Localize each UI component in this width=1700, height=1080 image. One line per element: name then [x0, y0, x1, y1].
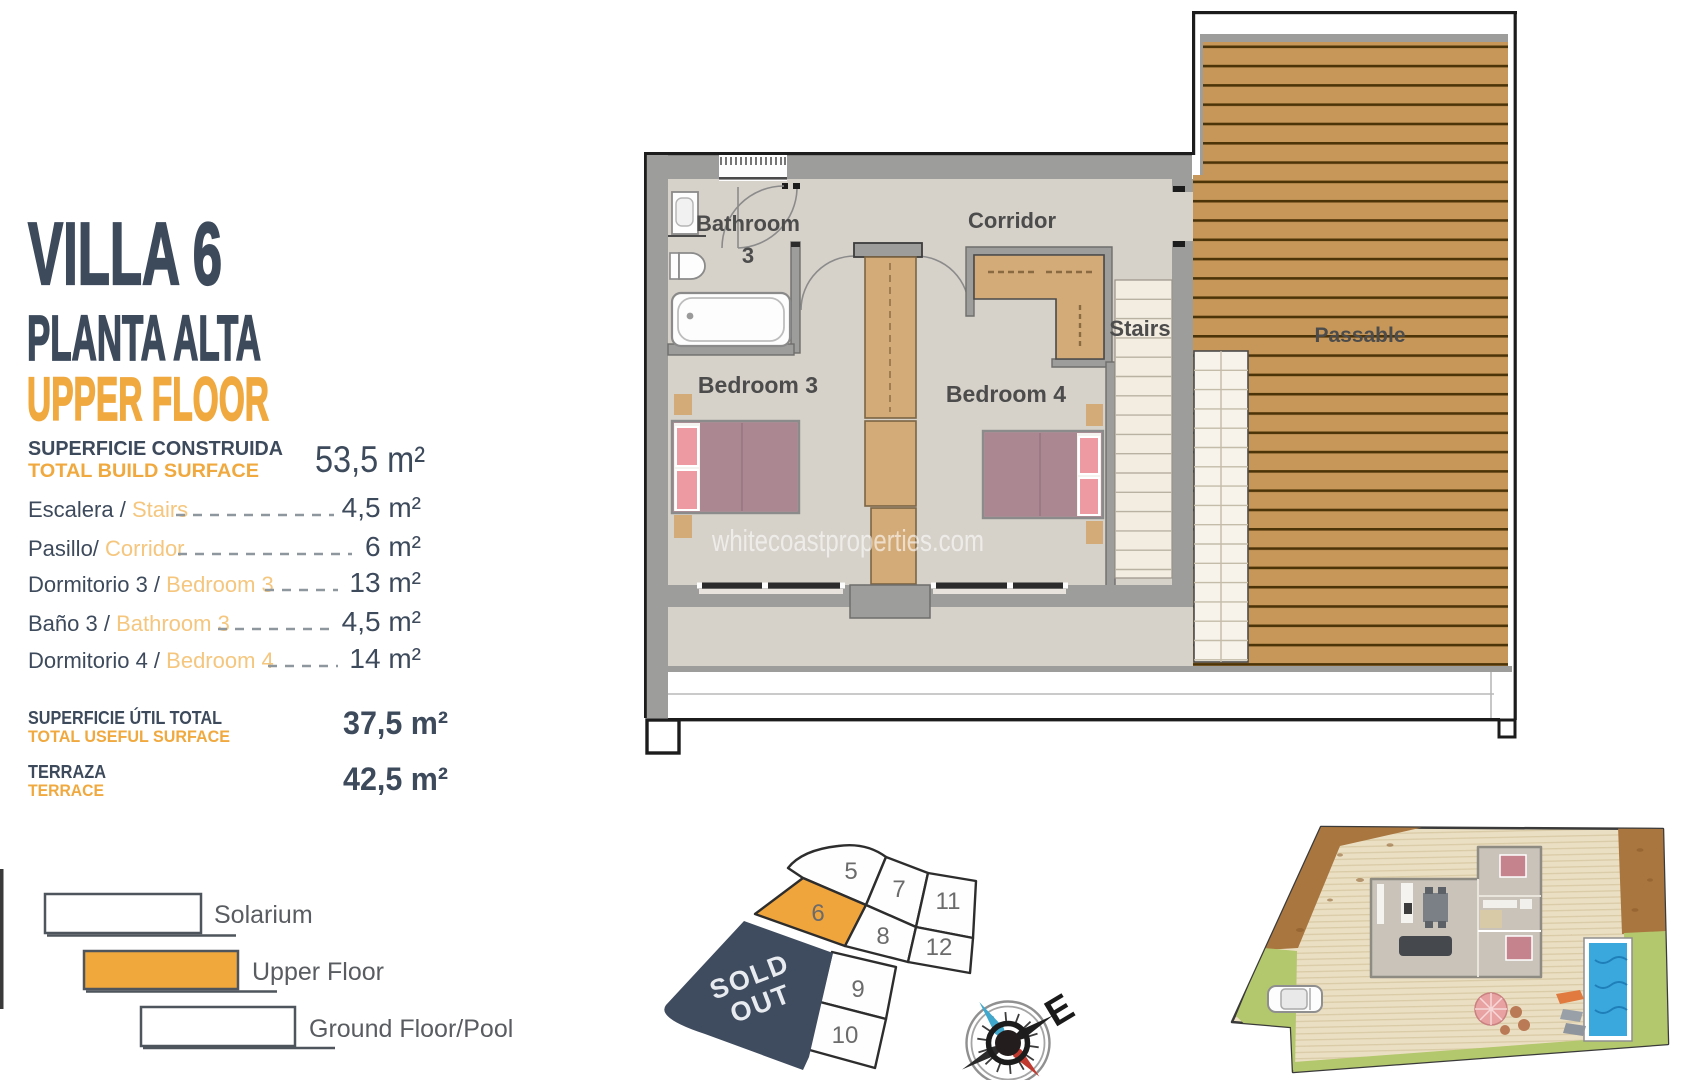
svg-text:Bathroom: Bathroom: [696, 211, 800, 236]
svg-text:Dormitorio 4 / Bedroom 4: Dormitorio 4 / Bedroom 4: [28, 648, 274, 673]
svg-text:42,5 m²: 42,5 m²: [343, 761, 448, 797]
svg-text:Upper Floor: Upper Floor: [252, 958, 384, 986]
svg-text:3: 3: [742, 243, 754, 268]
svg-text:SUPERFICIE ÚTIL TOTAL: SUPERFICIE ÚTIL TOTAL: [28, 707, 222, 728]
svg-text:5: 5: [844, 858, 857, 885]
svg-text:Solarium: Solarium: [214, 901, 313, 929]
svg-text:whitecoastproperties.com: whitecoastproperties.com: [711, 523, 984, 558]
svg-text:UPPER FLOOR: UPPER FLOOR: [27, 365, 269, 433]
svg-text:Stairs: Stairs: [1109, 316, 1170, 341]
svg-text:Dormitorio 3 / Bedroom 3: Dormitorio 3 / Bedroom 3: [28, 572, 274, 597]
svg-text:Corridor: Corridor: [968, 208, 1056, 233]
svg-text:9: 9: [851, 976, 864, 1003]
svg-text:Passable: Passable: [1314, 324, 1405, 347]
svg-text:13 m²: 13 m²: [349, 567, 421, 598]
svg-text:PLANTA ALTA: PLANTA ALTA: [27, 302, 261, 374]
svg-text:Ground Floor/Pool: Ground Floor/Pool: [309, 1015, 513, 1043]
svg-text:Baño 3 / Bathroom 3: Baño 3 / Bathroom 3: [28, 611, 230, 636]
svg-text:7: 7: [892, 876, 905, 903]
svg-text:10: 10: [832, 1022, 859, 1049]
svg-text:37,5 m²: 37,5 m²: [343, 705, 448, 741]
svg-text:TERRAZA: TERRAZA: [28, 762, 106, 782]
svg-text:Pasillo/ Corridor: Pasillo/ Corridor: [28, 536, 185, 561]
svg-text:8: 8: [876, 923, 889, 950]
svg-text:12: 12: [926, 934, 953, 961]
svg-text:Bedroom 3: Bedroom 3: [698, 372, 818, 398]
svg-text:VILLA 6: VILLA 6: [28, 204, 222, 303]
svg-text:TERRACE: TERRACE: [28, 781, 104, 800]
svg-text:Escalera / Stairs: Escalera / Stairs: [28, 497, 188, 522]
svg-text:14 m²: 14 m²: [349, 643, 421, 674]
svg-text:Bedroom 4: Bedroom 4: [946, 381, 1066, 407]
svg-text:TOTAL BUILD SURFACE: TOTAL BUILD SURFACE: [28, 461, 259, 482]
svg-text:4,5 m²: 4,5 m²: [342, 492, 421, 523]
svg-text:4,5 m²: 4,5 m²: [342, 606, 421, 637]
svg-text:6: 6: [811, 900, 824, 927]
svg-text:TOTAL USEFUL SURFACE: TOTAL USEFUL SURFACE: [28, 727, 230, 746]
svg-text:SUPERFICIE CONSTRUIDA: SUPERFICIE CONSTRUIDA: [28, 438, 283, 460]
svg-text:11: 11: [936, 888, 961, 915]
svg-text:53,5 m²: 53,5 m²: [315, 439, 425, 480]
svg-text:6 m²: 6 m²: [365, 531, 421, 562]
